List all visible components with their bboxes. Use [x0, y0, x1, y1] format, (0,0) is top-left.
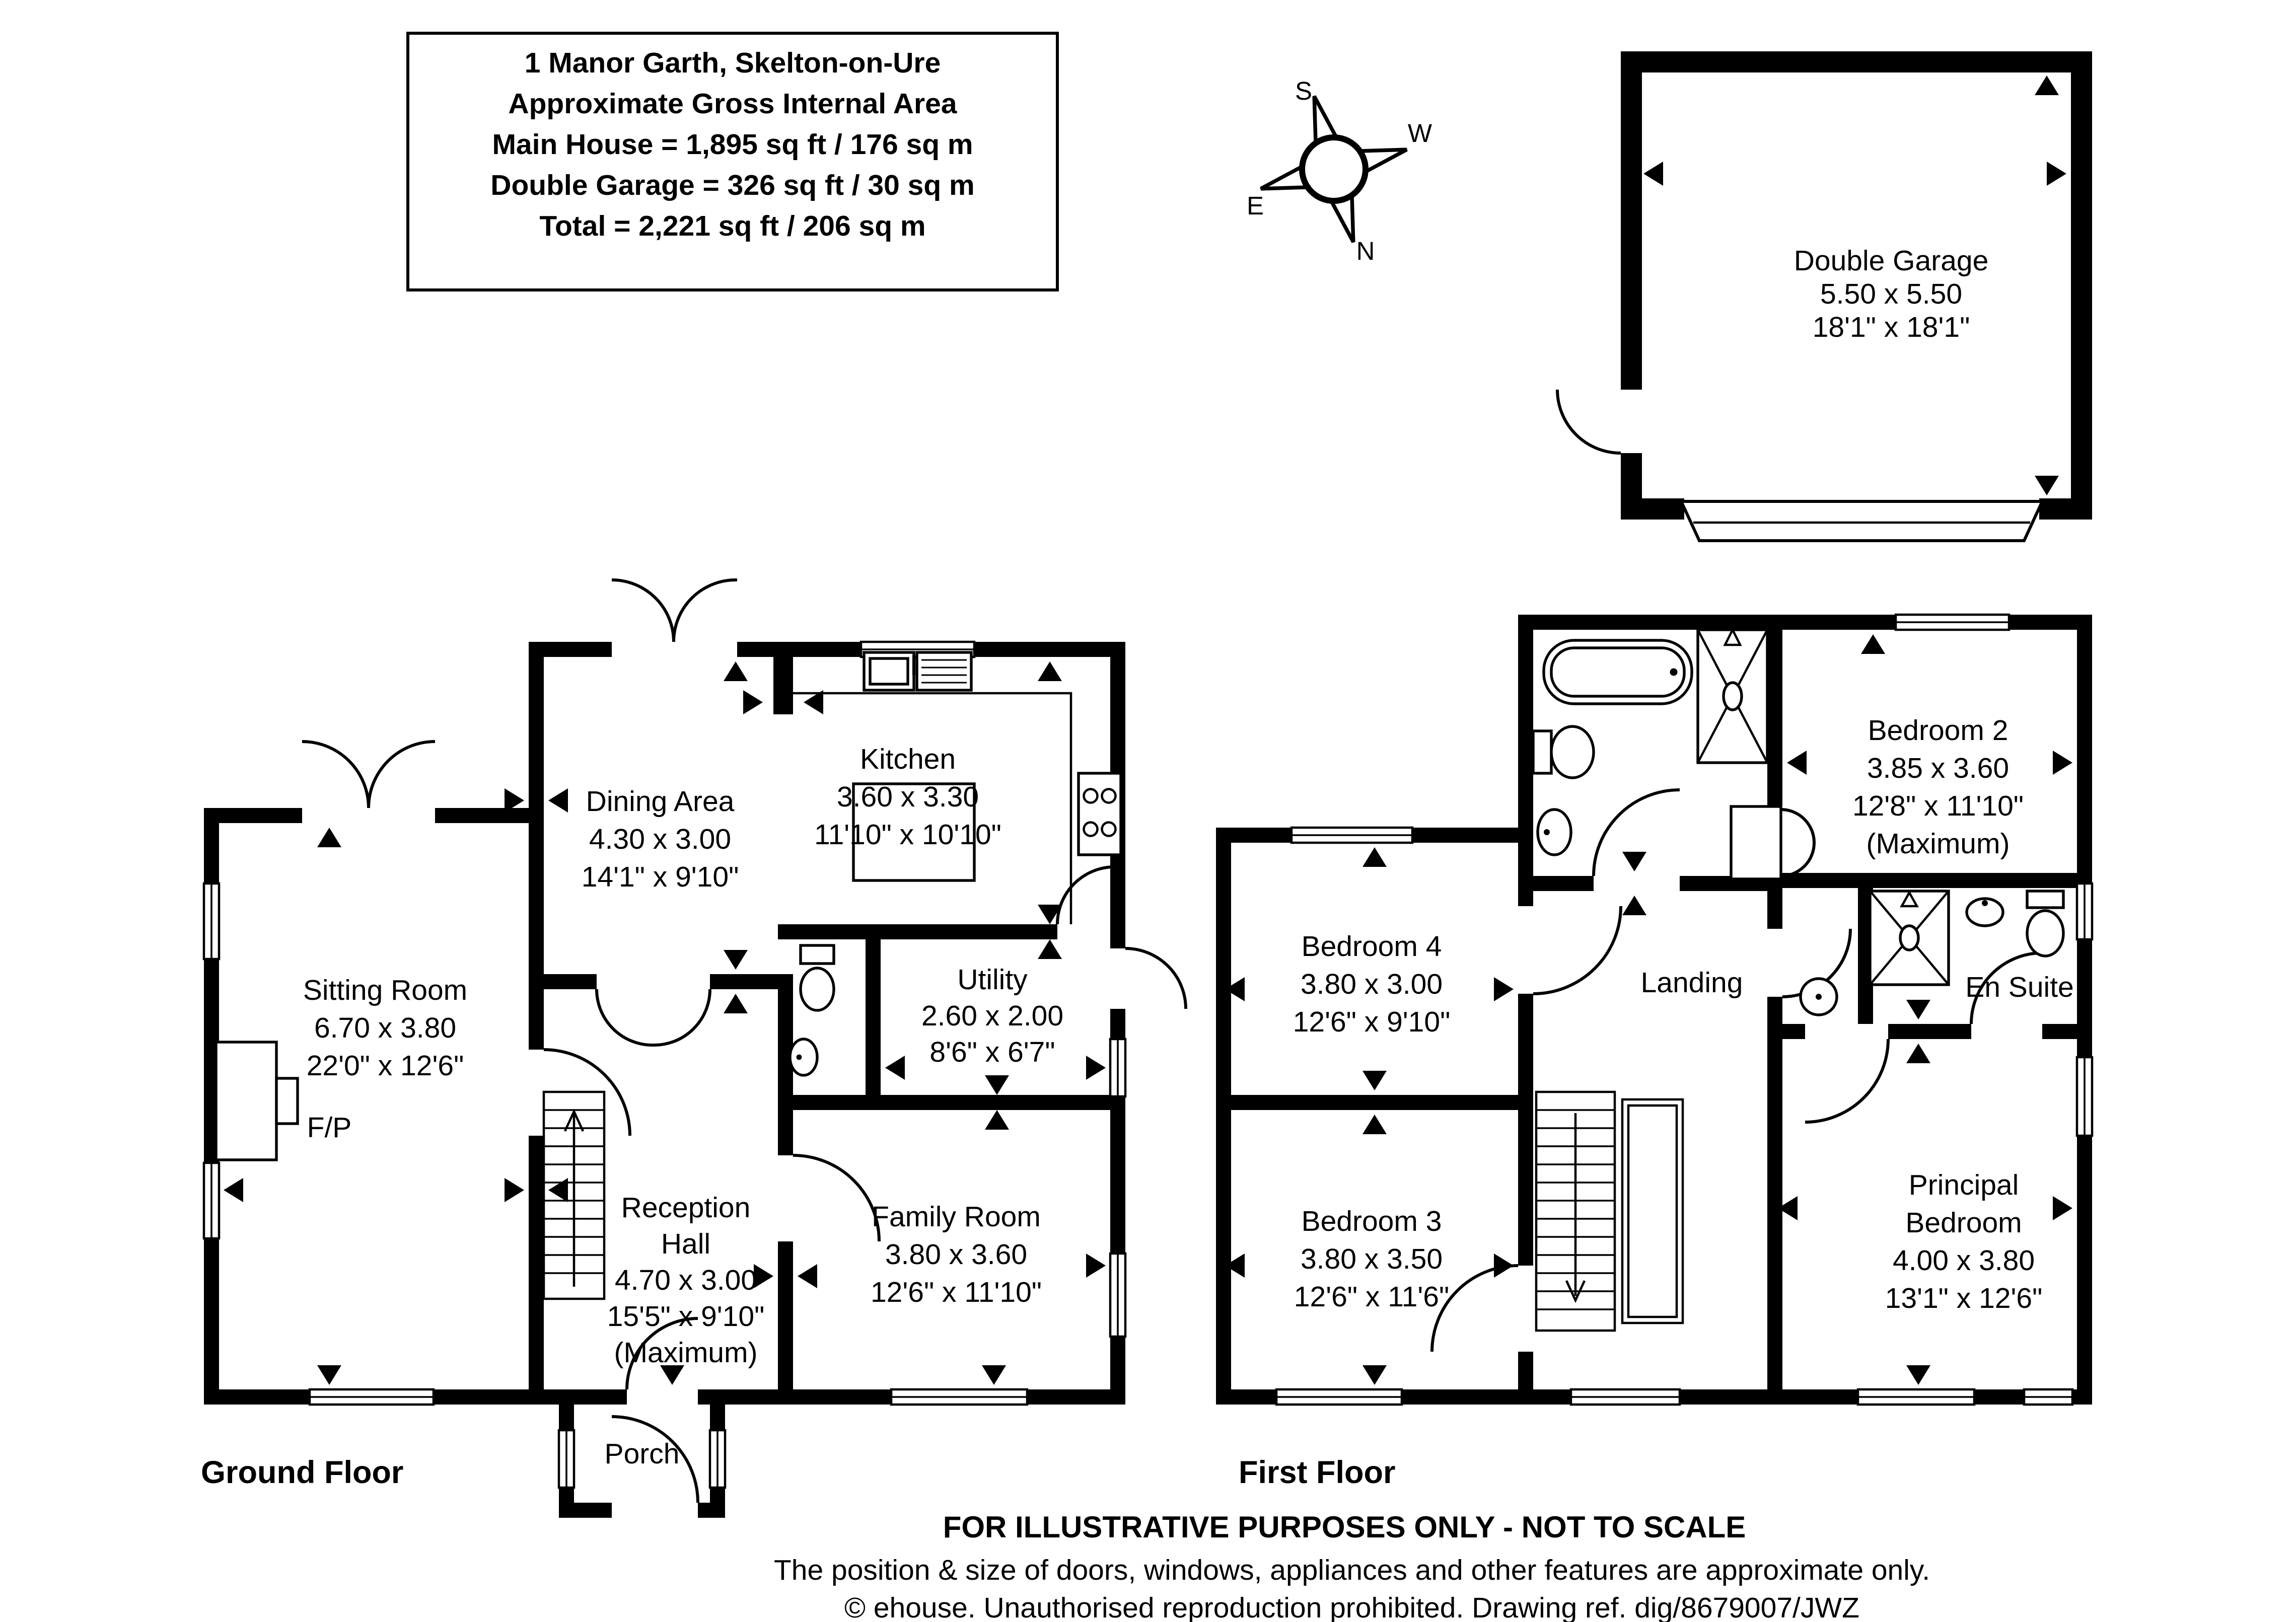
- room-dim-imperial-reception-hall: 15'5" x 9'10": [607, 1300, 765, 1333]
- room-label-en-suite: En Suite: [1965, 971, 2073, 1003]
- ground-floor-plan: Sitting Room 6.70 x 3.80 22'0" x 12'6" D…: [201, 580, 1186, 1518]
- room-label-principal-bedroom-2: Bedroom: [1905, 1207, 2022, 1239]
- room-label-principal-bedroom-1: Principal: [1909, 1169, 2019, 1201]
- door-arc: [1533, 906, 1621, 994]
- window: [1110, 1039, 1125, 1096]
- room-dim-imperial-bedroom-2: 12'8" x 11'10": [1852, 790, 2024, 822]
- floorplan-canvas: 1 Manor Garth, Skelton-on-Ure Approximat…: [0, 0, 2296, 1622]
- room-note-bedroom-2: (Maximum): [1867, 828, 2010, 860]
- toilet-icon: [801, 945, 834, 1010]
- title-block: 1 Manor Garth, Skelton-on-Ure Approximat…: [408, 33, 1057, 290]
- footer-line-3: © ehouse. Unauthorised reproduction proh…: [844, 1592, 1859, 1622]
- room-label-bedroom-2: Bedroom 2: [1868, 714, 2008, 747]
- window: [1291, 828, 1412, 843]
- garage-vehicle-door-icon: [1681, 501, 2042, 541]
- window: [204, 883, 219, 959]
- compass-star-icon: [1241, 77, 1426, 261]
- room-dim-imperial-bedroom-4: 12'6" x 9'10": [1293, 1006, 1451, 1038]
- shower-icon: [1698, 630, 1767, 763]
- bath-icon: [1544, 640, 1692, 704]
- compass-west-label: W: [1408, 119, 1432, 148]
- first-floor-plan: Bedroom 4 3.80 x 3.00 12'6" x 9'10" Bedr…: [1216, 615, 2092, 1490]
- room-dim-imperial-kitchen: 11'10" x 10'10": [814, 819, 1001, 851]
- door-arc: [1805, 1039, 1888, 1122]
- toilet-icon: [2027, 891, 2063, 956]
- door-arc: [1057, 867, 1115, 924]
- title-address: 1 Manor Garth, Skelton-on-Ure: [525, 47, 941, 79]
- room-dim-metric-kitchen: 3.60 x 3.30: [837, 781, 979, 813]
- window: [2077, 883, 2092, 939]
- room-dim-imperial-utility: 8'6" x 6'7": [929, 1036, 1055, 1068]
- room-dim-imperial-family-room: 12'6" x 11'10": [871, 1276, 1042, 1308]
- title-subtitle: Approximate Gross Internal Area: [508, 88, 957, 120]
- room-label-kitchen: Kitchen: [860, 743, 956, 775]
- room-label-garage: Double Garage: [1794, 245, 1989, 277]
- room-dim-metric-sitting-room: 6.70 x 3.80: [314, 1012, 456, 1044]
- room-label-dining-area: Dining Area: [586, 785, 735, 818]
- room-dim-metric-reception-hall: 4.70 x 3.00: [615, 1264, 757, 1296]
- window: [1571, 1389, 1680, 1405]
- room-dim-metric-family-room: 3.80 x 3.60: [885, 1238, 1027, 1271]
- compass-rose: S W E N: [1241, 77, 1432, 265]
- room-label-reception-hall-1: Reception: [621, 1192, 751, 1224]
- door-arc: [612, 580, 674, 642]
- window: [1858, 1389, 1974, 1405]
- footer-disclaimer: FOR ILLUSTRATIVE PURPOSES ONLY - NOT TO …: [774, 1510, 1930, 1622]
- window: [891, 1389, 1027, 1405]
- first-floor-title: First Floor: [1239, 1455, 1396, 1490]
- room-dim-metric-garage: 5.50 x 5.50: [1820, 278, 1962, 310]
- toilet-icon: [1533, 726, 1594, 778]
- room-dim-metric-utility: 2.60 x 2.00: [921, 1000, 1063, 1032]
- fireplace-label: F/P: [307, 1112, 352, 1144]
- room-dim-imperial-sitting-room: 22'0" x 12'6": [307, 1050, 464, 1082]
- basin-icon: [1801, 979, 1837, 1015]
- window: [559, 1430, 574, 1488]
- room-dim-imperial-bedroom-3: 12'6" x 11'6": [1294, 1281, 1449, 1313]
- garage-door-arc: [1557, 390, 1621, 453]
- shower-icon: [1870, 891, 1949, 985]
- window: [1276, 1389, 1402, 1405]
- window: [2024, 1389, 2072, 1405]
- basin-icon: [1538, 809, 1571, 855]
- door-arc: [369, 742, 435, 808]
- hob-icon: [1079, 773, 1121, 855]
- room-dim-metric-bedroom-3: 3.80 x 3.50: [1301, 1243, 1443, 1275]
- stairs-down-icon: [1536, 1092, 1683, 1331]
- fireplace-icon: [216, 1042, 298, 1160]
- garage-plan: Double Garage 5.50 x 5.50 18'1" x 18'1": [1557, 51, 2092, 541]
- stairs-up-icon: [544, 1092, 604, 1299]
- room-label-bedroom-3: Bedroom 3: [1302, 1205, 1442, 1237]
- wardrobe-icon: [1731, 806, 1814, 879]
- ground-floor-title: Ground Floor: [201, 1455, 403, 1490]
- door-arc: [653, 989, 710, 1045]
- window: [1110, 1254, 1125, 1337]
- door-arc: [793, 1155, 879, 1241]
- footer-line-2: The position & size of doors, windows, a…: [774, 1554, 1930, 1586]
- room-label-porch: Porch: [605, 1438, 680, 1470]
- room-dim-metric-bedroom-2: 3.85 x 3.60: [1867, 752, 2009, 784]
- room-label-reception-hall-2: Hall: [661, 1228, 710, 1260]
- room-dim-imperial-garage: 18'1" x 18'1": [1813, 311, 1970, 343]
- door-arc: [597, 989, 653, 1045]
- room-label-bedroom-4: Bedroom 4: [1302, 930, 1442, 963]
- room-dim-metric-dining-area: 4.30 x 3.00: [589, 823, 731, 855]
- room-dim-imperial-principal-bedroom: 13'1" x 12'6": [1885, 1282, 2043, 1314]
- window: [310, 1389, 434, 1405]
- basin-icon: [790, 1039, 817, 1075]
- compass-east-label: E: [1247, 191, 1264, 220]
- window: [1896, 615, 2009, 630]
- room-dim-imperial-dining-area: 14'1" x 9'10": [582, 861, 739, 893]
- compass-north-label: N: [1356, 237, 1375, 265]
- compass-south-label: S: [1295, 77, 1312, 105]
- room-label-sitting-room: Sitting Room: [303, 974, 467, 1006]
- basin-icon: [1967, 899, 2003, 926]
- footer-line-1: FOR ILLUSTRATIVE PURPOSES ONLY - NOT TO …: [943, 1510, 1746, 1544]
- door-arc: [674, 580, 737, 642]
- room-dim-metric-bedroom-4: 3.80 x 3.00: [1301, 968, 1443, 1000]
- window: [2077, 1057, 2092, 1136]
- title-garage-area: Double Garage = 326 sq ft / 30 sq m: [490, 169, 974, 201]
- window: [710, 1430, 725, 1488]
- title-main-house-area: Main House = 1,895 sq ft / 176 sq m: [492, 128, 973, 161]
- room-label-family-room: Family Room: [872, 1201, 1041, 1233]
- room-note-reception-hall: (Maximum): [614, 1337, 758, 1369]
- room-label-utility: Utility: [957, 964, 1028, 996]
- door-arc: [302, 742, 369, 808]
- room-label-landing: Landing: [1641, 967, 1743, 999]
- room-dim-metric-principal-bedroom: 4.00 x 3.80: [1893, 1244, 2035, 1277]
- window: [204, 1163, 219, 1238]
- door-arc: [1125, 948, 1186, 1009]
- title-total-area: Total = 2,221 sq ft / 206 sq m: [539, 210, 925, 242]
- sink-icon: [864, 652, 971, 690]
